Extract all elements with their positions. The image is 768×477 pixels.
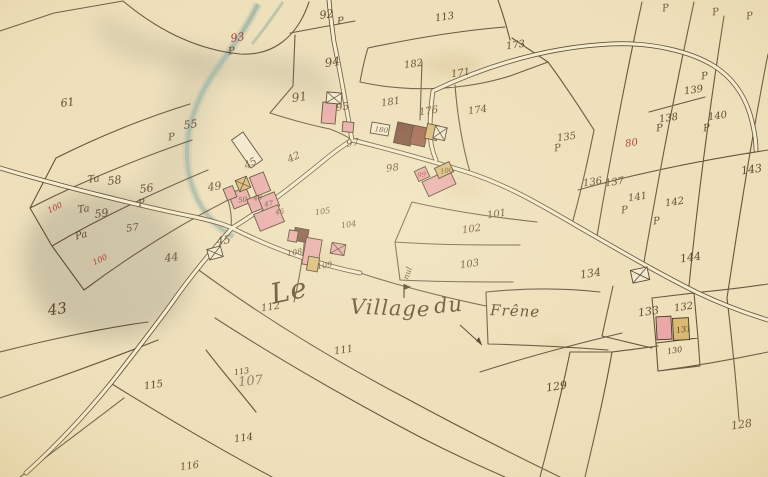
parcel-label-80: 80 — [625, 137, 640, 150]
building — [288, 230, 299, 242]
cadastral-map-sheet: 6193P55P92P11317394182171919518117617413… — [0, 0, 768, 477]
parcel-label-93: 93 — [230, 30, 246, 45]
parcel-label-56: 56 — [139, 181, 155, 196]
building — [342, 122, 354, 133]
map-title-word-village: Village — [350, 295, 431, 322]
map-title-word-frêne: Frêne — [489, 301, 541, 321]
parcel-label-46: 46 — [274, 207, 285, 216]
parcel-label-ta: Ta — [87, 173, 100, 186]
parcel-label-95: 95 — [336, 101, 350, 114]
parcel-label-99: 99 — [417, 170, 427, 179]
parcel-label-ta: Ta — [77, 203, 90, 216]
hatched-building-symbol — [433, 125, 447, 140]
parcel-label-98: 98 — [386, 162, 400, 175]
parcel-label-44: 44 — [163, 250, 180, 265]
parcel-label-97: 97 — [346, 137, 361, 150]
map-title-word-du: du — [433, 292, 464, 318]
parcel-label-45: 45 — [215, 233, 232, 248]
parcel-label-50: 50 — [238, 195, 248, 204]
building — [321, 102, 337, 124]
parcel-label-92: 92 — [319, 7, 335, 22]
parcel-label-48: 48 — [252, 193, 263, 202]
parcel-label-47: 47 — [263, 199, 274, 208]
parcel-label-57: 57 — [126, 222, 141, 235]
hatched-building-symbol — [330, 242, 346, 255]
parcel-label-49: 49 — [206, 179, 223, 194]
parcel-label-58: 58 — [107, 173, 123, 188]
parcel-label-91: 91 — [291, 89, 308, 105]
building — [656, 316, 672, 340]
parcel-label-55: 55 — [183, 117, 199, 132]
parcel-label-107: 107 — [238, 373, 265, 391]
parcel-label-94: 94 — [324, 54, 341, 70]
parcel-label-59: 59 — [94, 206, 110, 221]
parcel-label-43: 43 — [46, 299, 68, 320]
cadastral-map: 6193P55P92P11317394182171919518117617413… — [0, 0, 768, 477]
parcel-label-61: 61 — [60, 95, 76, 110]
